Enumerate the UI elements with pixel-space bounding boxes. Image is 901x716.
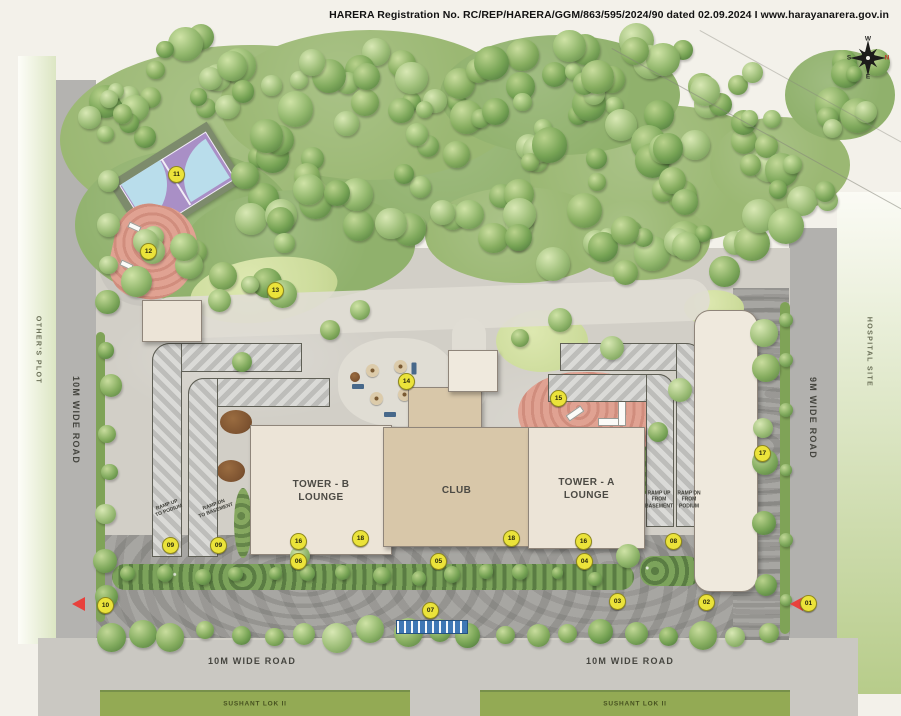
tree-icon: [375, 208, 406, 239]
umbrella-icon: [366, 364, 379, 377]
tree-icon: [324, 180, 350, 206]
tree-icon: [613, 260, 638, 285]
tree-icon: [709, 256, 740, 287]
tree-icon: [101, 464, 117, 480]
plan-marker-18[interactable]: 18: [503, 530, 520, 547]
tree-icon: [659, 627, 678, 646]
club-label: CLUB: [384, 484, 529, 497]
tree-icon: [395, 62, 427, 94]
tree-icon: [100, 374, 122, 396]
compass-south-label: S: [847, 55, 851, 62]
tree-icon: [168, 27, 203, 62]
sushant-lok-label-east: SUSHANT LOK II: [603, 701, 667, 708]
club-building: CLUB: [383, 427, 530, 547]
tree-icon: [689, 621, 718, 650]
site-plan-canvas: RAMP UPTO PODIUM RAMP DNTO BASEMENT RAMP…: [0, 0, 901, 716]
tree-icon: [95, 504, 116, 525]
tree-icon: [430, 200, 455, 225]
bench-icon: [384, 412, 396, 417]
tree-icon: [581, 60, 615, 94]
tree-icon: [443, 141, 470, 168]
tower-b-label: TOWER - B LOUNGE: [251, 478, 391, 504]
tree-icon: [779, 533, 793, 547]
right-road-label: 9M WIDE ROAD: [808, 377, 818, 459]
planter-oval: [217, 460, 245, 482]
umbrella-icon: [370, 392, 383, 405]
compass-rose: W N S E: [846, 36, 890, 80]
club-extension: [408, 387, 482, 431]
tree-icon: [444, 566, 461, 583]
tree-icon: [99, 256, 118, 275]
tree-icon: [334, 111, 359, 136]
tree-icon: [351, 89, 378, 116]
tree-icon: [588, 173, 605, 190]
tree-icon: [242, 277, 259, 294]
tree-icon: [783, 155, 801, 173]
tree-icon: [725, 627, 745, 647]
bottom-road-label-east: 10M WIDE ROAD: [586, 656, 674, 666]
plan-marker-14[interactable]: 14: [398, 373, 415, 390]
tree-icon: [779, 403, 793, 417]
northwest-building: [142, 300, 202, 342]
plan-marker-03[interactable]: 03: [609, 593, 626, 610]
tree-icon: [261, 75, 281, 95]
tree-icon: [95, 290, 119, 314]
tree-icon: [78, 106, 100, 128]
plan-marker-11[interactable]: 11: [168, 166, 185, 183]
tree-icon: [454, 200, 483, 229]
tree-icon: [97, 126, 113, 142]
tree-icon: [98, 342, 114, 358]
tree-icon: [512, 564, 528, 580]
front-hedge-row-east: [640, 556, 700, 586]
tree-icon: [231, 162, 258, 189]
tree-icon: [406, 123, 428, 145]
play-structure-icon: [618, 400, 626, 426]
tree-icon: [322, 623, 352, 653]
tree-icon: [170, 233, 198, 261]
tree-icon: [156, 623, 185, 652]
plan-marker-16[interactable]: 16: [290, 533, 307, 550]
tree-icon: [190, 88, 207, 105]
tree-icon: [278, 91, 313, 126]
tree-icon: [768, 208, 804, 244]
plan-marker-15[interactable]: 15: [550, 390, 567, 407]
plan-marker-02[interactable]: 02: [698, 594, 715, 611]
compass-north-label: N: [885, 55, 890, 62]
tree-icon: [129, 620, 157, 648]
tree-icon: [250, 119, 283, 152]
ramp-right-up-label: RAMP UPFROMBASEMENT: [645, 491, 673, 510]
plan-marker-04[interactable]: 04: [576, 553, 593, 570]
tree-icon: [750, 319, 777, 346]
ramp-left-down-vertical: [188, 378, 218, 557]
tree-icon: [672, 232, 700, 260]
hospital-site-strip: [837, 192, 901, 694]
tree-icon: [616, 544, 640, 568]
tree-icon: [600, 336, 624, 360]
tree-icon: [552, 567, 563, 578]
tree-icon: [265, 628, 283, 646]
tree-icon: [98, 425, 116, 443]
bench-icon: [412, 363, 417, 375]
tree-icon: [672, 189, 698, 215]
plan-marker-09[interactable]: 09: [162, 537, 179, 554]
compass-west-label: W: [865, 36, 871, 43]
tree-icon: [588, 572, 602, 586]
round-table-icon: [350, 372, 360, 382]
exit-arrow-west: [72, 597, 85, 611]
tree-icon: [157, 565, 173, 581]
tree-icon: [474, 46, 509, 81]
tree-icon: [121, 266, 152, 297]
tree-icon: [113, 104, 132, 123]
tree-icon: [527, 624, 550, 647]
plan-marker-18[interactable]: 18: [352, 530, 369, 547]
ramp-left-up-vertical: [152, 343, 182, 557]
tree-icon: [98, 170, 119, 191]
plan-marker-12[interactable]: 12: [140, 243, 157, 260]
tree-icon: [779, 313, 793, 327]
tree-icon: [815, 181, 836, 202]
plan-marker-09[interactable]: 09: [210, 537, 227, 554]
tower-b-lounge: TOWER - B LOUNGE: [250, 425, 392, 555]
tree-icon: [388, 98, 414, 124]
tree-icon: [350, 300, 370, 320]
tree-icon: [653, 133, 684, 164]
tree-icon: [668, 378, 692, 402]
bench-icon: [352, 384, 364, 389]
tree-icon: [274, 233, 295, 254]
plan-marker-01[interactable]: 01: [800, 595, 817, 612]
tree-icon: [680, 130, 710, 160]
bottom-road-label-west: 10M WIDE ROAD: [208, 656, 296, 666]
plan-marker-16[interactable]: 16: [575, 533, 592, 550]
tree-icon: [410, 176, 432, 198]
tree-icon: [412, 571, 427, 586]
tree-icon: [267, 207, 294, 234]
tree-icon: [625, 622, 648, 645]
club-pavilion: [448, 350, 498, 392]
umbrella-icon: [394, 360, 407, 373]
tower-a-lounge: TOWER - A LOUNGE: [528, 427, 645, 549]
tree-icon: [740, 154, 761, 175]
planter-oval: [220, 410, 252, 434]
tree-icon: [553, 30, 585, 62]
tree-icon: [394, 164, 414, 184]
tree-icon: [769, 180, 787, 198]
plan-marker-10[interactable]: 10: [97, 597, 114, 614]
ramp-right-down-label: RAMP DNFROMPODIUM: [677, 491, 700, 510]
tree-icon: [780, 464, 791, 475]
hospital-site-label: HOSPITAL SITE: [866, 317, 873, 387]
tree-icon: [293, 174, 324, 205]
tree-icon: [478, 223, 509, 254]
left-road-label: 10M WIDE ROAD: [71, 376, 81, 464]
tower-a-label: TOWER - A LOUNGE: [529, 476, 644, 502]
tree-icon: [195, 569, 210, 584]
sushant-lok-label-west: SUSHANT LOK II: [223, 701, 287, 708]
tree-icon: [208, 289, 231, 312]
tree-icon: [752, 511, 776, 535]
tree-icon: [506, 39, 539, 72]
tree-icon: [232, 626, 251, 645]
plan-marker-13[interactable]: 13: [267, 282, 284, 299]
tree-icon: [217, 51, 247, 81]
tree-icon: [763, 110, 781, 128]
tree-icon: [232, 80, 255, 103]
tree-icon: [93, 549, 117, 573]
tree-icon: [356, 615, 384, 643]
tree-icon: [532, 127, 567, 162]
plan-marker-07[interactable]: 07: [422, 602, 439, 619]
tree-icon: [134, 126, 155, 147]
plan-marker-05[interactable]: 05: [430, 553, 447, 570]
plan-marker-17[interactable]: 17: [754, 445, 771, 462]
harera-registration-text: HARERA Registration No. RC/REP/HARERA/GG…: [329, 9, 889, 21]
plan-marker-08[interactable]: 08: [665, 533, 682, 550]
tree-icon: [752, 354, 779, 381]
tree-icon: [690, 76, 721, 107]
tree-icon: [586, 148, 607, 169]
others-plot-label: OTHER'S PLOT: [35, 316, 42, 384]
entrance-water-feature: [396, 620, 468, 634]
tree-icon: [97, 213, 120, 236]
tree-icon: [479, 564, 494, 579]
tree-icon: [536, 247, 570, 281]
east-tower-slab: [694, 310, 758, 592]
plan-marker-06[interactable]: 06: [290, 553, 307, 570]
tree-icon: [235, 203, 267, 235]
tree-icon: [496, 626, 515, 645]
tree-icon: [146, 61, 164, 79]
tree-icon: [97, 623, 126, 652]
tree-icon: [588, 619, 613, 644]
compass-east-label: E: [866, 74, 870, 81]
